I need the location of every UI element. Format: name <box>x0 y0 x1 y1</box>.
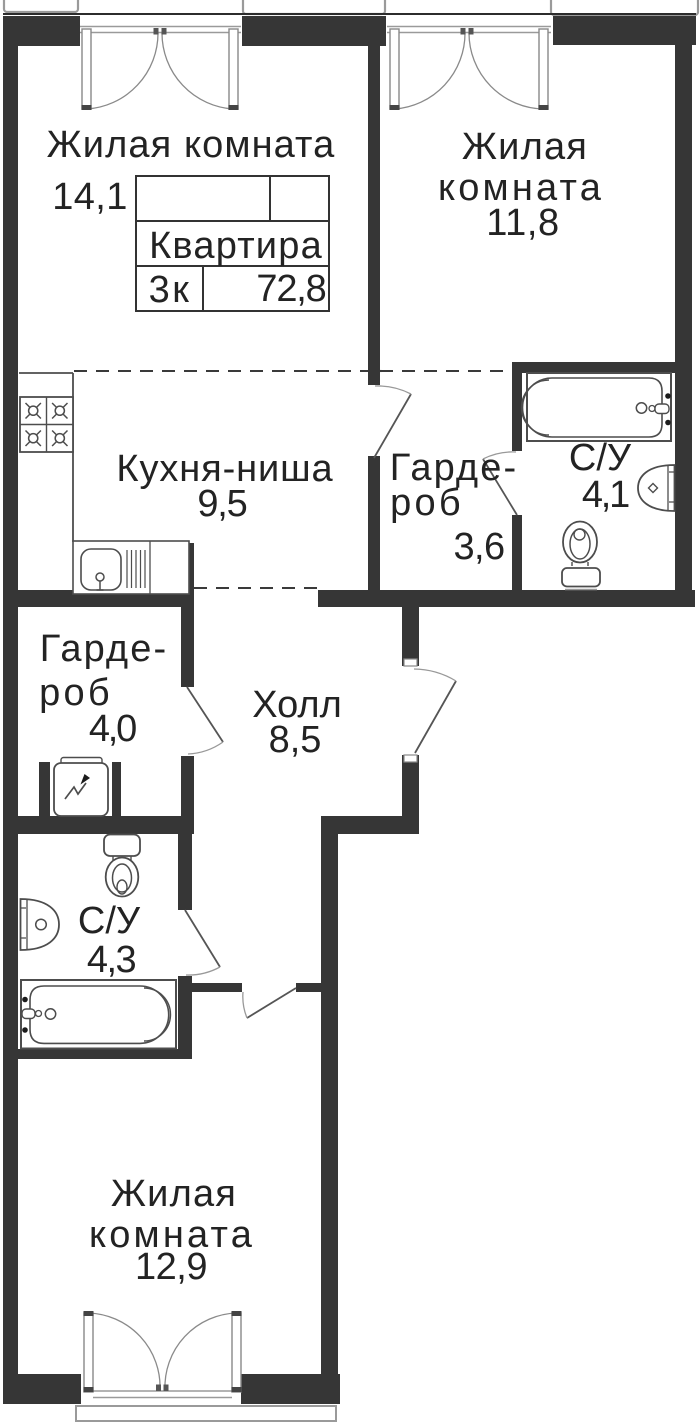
svg-text:4,1: 4,1 <box>582 474 629 516</box>
svg-text:8,5: 8,5 <box>269 719 322 761</box>
svg-text:Гарде-: Гарде- <box>40 628 168 670</box>
svg-text:4,0: 4,0 <box>89 708 136 750</box>
svg-text:9,5: 9,5 <box>197 483 246 525</box>
svg-text:72,8: 72,8 <box>256 268 325 310</box>
svg-text:3к: 3к <box>149 269 192 311</box>
svg-text:С/У: С/У <box>78 900 141 942</box>
svg-text:Жилая: Жилая <box>462 126 588 168</box>
svg-text:14,1: 14,1 <box>52 176 128 218</box>
svg-text:3,6: 3,6 <box>453 526 504 568</box>
svg-text:С/У: С/У <box>569 437 632 479</box>
svg-text:12,9: 12,9 <box>135 1246 207 1288</box>
svg-text:Жилая: Жилая <box>111 1173 237 1215</box>
svg-text:Жилая комната: Жилая комната <box>47 124 336 166</box>
svg-text:4,3: 4,3 <box>87 939 136 981</box>
svg-text:11,8: 11,8 <box>486 202 560 244</box>
svg-text:Квартира: Квартира <box>149 225 323 267</box>
svg-text:роб: роб <box>390 482 464 524</box>
